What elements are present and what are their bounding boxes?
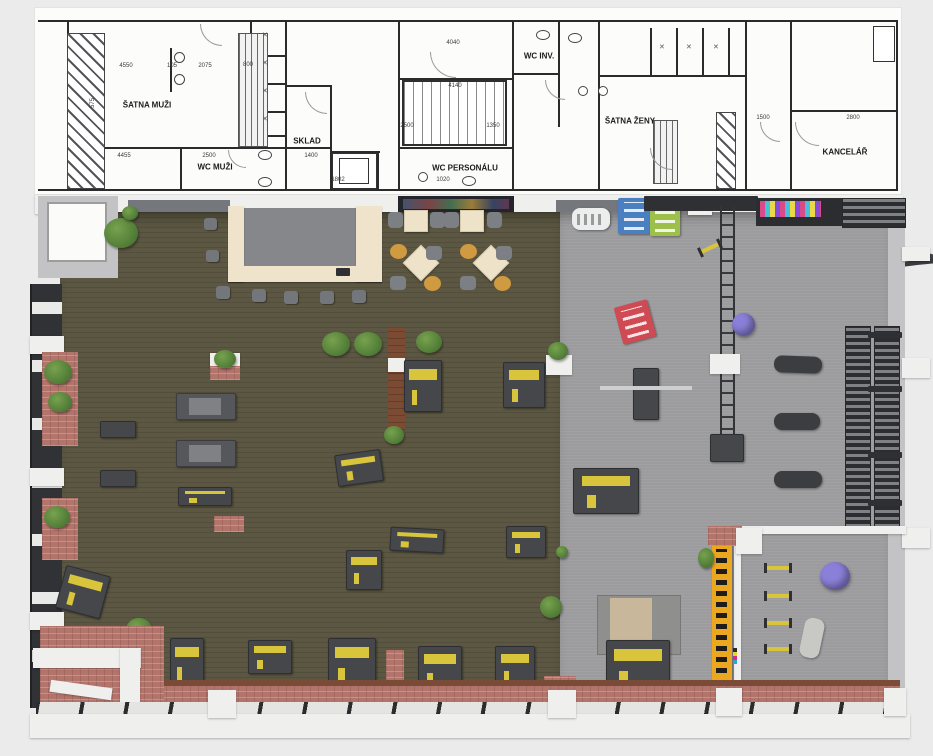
office-desk [873, 26, 895, 62]
wall-segment [398, 20, 400, 191]
wall-segment [180, 147, 182, 191]
bush [122, 206, 138, 220]
cafe-chair [460, 276, 476, 290]
bar-stool [206, 250, 219, 262]
bush [48, 392, 72, 412]
gym-floorplan-image: ✕✕✕✕✕✕✕ŠATNA MUŽIWC MUŽISKLADWC PERSONÁL… [0, 0, 933, 756]
cafe-chair [460, 244, 477, 259]
right-wall-tab [902, 247, 930, 261]
sink [174, 74, 185, 85]
rack-bar [868, 452, 902, 458]
wall-segment [790, 110, 898, 112]
treadmill [176, 393, 236, 420]
hatched-wall-right [716, 112, 736, 189]
shower-symbol: ✕ [262, 60, 268, 67]
dim-label: 2800 [846, 115, 859, 121]
white-column [716, 688, 742, 716]
cmyk-mark [733, 648, 737, 664]
dim-label: 1350 [486, 123, 499, 129]
cafe-wall-table [460, 210, 484, 232]
bush [322, 332, 350, 356]
wall-segment [105, 147, 332, 149]
wall-segment [285, 20, 287, 191]
elliptical [100, 421, 136, 438]
toilet [258, 177, 272, 187]
rack-bar [868, 500, 902, 506]
plate-rack [842, 198, 906, 228]
toilet [536, 30, 550, 40]
room-label: ŠATNA ŽENY [605, 117, 655, 126]
shower-symbol: ✕ [262, 32, 268, 39]
wall-segment [38, 20, 898, 22]
bar-stool [204, 218, 217, 230]
sink [418, 172, 428, 182]
floor-plant [556, 546, 568, 558]
shower-symbol: ✕ [659, 44, 665, 51]
toilet [462, 176, 476, 186]
rack-bar [868, 332, 902, 338]
bar-inner-floor [242, 208, 360, 268]
strength-machine [506, 526, 546, 558]
wall-segment [170, 48, 172, 92]
column-planter-brick [214, 516, 244, 532]
sink [598, 86, 608, 96]
leg-press [573, 468, 639, 514]
dim-label: 800 [243, 62, 253, 68]
sink [174, 52, 185, 63]
bar-counter-front [228, 266, 382, 282]
exercise-bike [178, 487, 232, 506]
room-label: KANCELÁŘ [823, 148, 868, 157]
outer-sill [30, 714, 910, 738]
cafe-chair [494, 276, 511, 291]
wall-segment [745, 20, 747, 191]
strength-machine [248, 640, 292, 674]
dim-label: 1500 [756, 115, 769, 121]
cafe-chair [390, 244, 407, 259]
staircase [402, 80, 507, 146]
cafe-chair [388, 212, 403, 228]
dim-label: 2500 [400, 123, 413, 129]
wall-segment [728, 28, 730, 75]
cafe-wall-table [404, 210, 428, 232]
cafe-chair [487, 212, 502, 228]
equipment-shelf [644, 196, 758, 211]
cafe-chair [426, 246, 442, 260]
bar-stool [352, 290, 366, 303]
shower-symbol: ✕ [262, 116, 268, 123]
cafe-chair [424, 276, 441, 291]
toilet [258, 150, 272, 160]
dim-label: 1020 [436, 177, 449, 183]
shower-symbol: ✕ [686, 44, 692, 51]
smith-machine [503, 362, 545, 408]
bush [44, 360, 72, 384]
bar-stool [252, 289, 266, 302]
strength-machine [404, 360, 442, 412]
room-label: SKLAD [293, 137, 321, 146]
dim-label: 4455 [117, 153, 130, 159]
dim-label: 1400 [304, 153, 317, 159]
fixed-barbell [764, 647, 792, 651]
elevator-shaft [47, 202, 107, 262]
right-wall-tab [902, 528, 930, 548]
window-sill-column [30, 468, 64, 486]
wall-segment [38, 189, 898, 191]
wall-segment [285, 85, 332, 87]
bush [416, 331, 442, 353]
dim-label: 4550 [119, 63, 132, 69]
hatched-wall-left [67, 33, 105, 189]
wall-segment [702, 28, 704, 75]
bush [104, 218, 138, 248]
weight-bench [389, 527, 444, 554]
cash-register [336, 268, 350, 276]
cafe-chair [496, 246, 512, 260]
white-column-base [710, 354, 740, 374]
bar-stool [320, 291, 334, 304]
wood-partition [388, 328, 405, 430]
exercise-ball [732, 313, 755, 336]
cafe-chair [430, 212, 445, 228]
fixed-barbell [764, 566, 792, 570]
room-label: WC PERSONÁLU [432, 164, 498, 173]
shower-symbol: ✕ [713, 44, 719, 51]
bar-stool [216, 286, 230, 299]
dim-label: 4040 [446, 40, 459, 46]
dim-label: 1802 [331, 177, 344, 183]
wood-partition-band [388, 358, 405, 372]
flat-bench [774, 413, 820, 430]
right-wall-tab [902, 358, 930, 378]
bench-press-station [633, 368, 659, 420]
dim-label: 2075 [198, 63, 211, 69]
treadmill [176, 440, 236, 467]
wall-segment [512, 73, 560, 75]
shower-symbol: ✕ [262, 88, 268, 95]
white-column [884, 688, 906, 716]
bush [354, 332, 382, 356]
floor-plant [548, 342, 568, 360]
fixed-barbell [764, 594, 792, 598]
white-column [208, 690, 236, 718]
floor-plant [384, 426, 404, 444]
dim-label: 575 [90, 98, 96, 108]
wall-segment [598, 20, 600, 191]
wall-segment [377, 151, 379, 191]
wall-segment [398, 147, 514, 149]
dumbbell-rack-white [572, 208, 610, 230]
room-label: WC MUŽI [197, 163, 232, 172]
bush [214, 350, 236, 368]
wall-segment [896, 20, 898, 191]
fixed-barbell [764, 621, 792, 625]
banner-wall-yellow [712, 540, 732, 688]
flat-bench [774, 471, 822, 488]
wall-segment [512, 20, 514, 191]
floor-plant [698, 548, 714, 568]
barbell [600, 386, 692, 390]
wall-segment [790, 20, 792, 191]
room-label: WC INV. [524, 52, 554, 61]
strength-machine [334, 449, 384, 487]
bush [44, 506, 70, 528]
strength-machine [346, 550, 382, 590]
flat-bench [774, 355, 823, 374]
wall-segment [598, 75, 747, 77]
room-label: ŠATNA MUŽI [123, 101, 171, 110]
cafe-chair [390, 276, 406, 290]
cafe-chair [444, 212, 459, 228]
roman-chair [710, 434, 744, 462]
column-planter-brick [210, 366, 240, 380]
dim-label: 2500 [202, 153, 215, 159]
wall-segment [650, 28, 652, 75]
white-column [736, 528, 762, 554]
toilet [568, 33, 582, 43]
dim-label: 105 [167, 63, 177, 69]
floor-plant [540, 596, 562, 618]
sink [578, 86, 588, 96]
bar-stool [284, 291, 298, 304]
rack-bar [868, 386, 902, 392]
elliptical [100, 470, 136, 487]
wall-segment [676, 28, 678, 75]
exercise-ball [820, 562, 850, 590]
dim-label: 4140 [448, 83, 461, 89]
white-column [548, 690, 576, 718]
